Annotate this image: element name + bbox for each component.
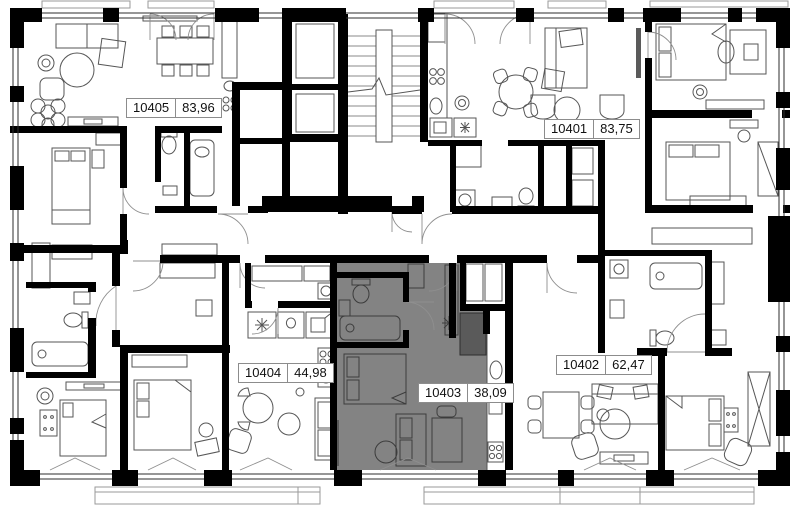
unit-number: 10403 [419,384,468,402]
wardrobe-icon [748,372,770,446]
desk-icon [718,30,766,74]
boiler-icon [572,180,593,206]
unit-number: 10401 [545,120,594,138]
ceiling-light-icon [37,388,53,404]
window [13,102,18,166]
dining-table-icon [157,26,213,76]
stool-icon [196,300,212,316]
bathroom-fixtures [32,292,90,366]
window [779,48,784,92]
sink-icon [430,98,442,114]
window [13,261,18,328]
unit-number: 10405 [127,99,176,117]
sink-icon [74,292,90,304]
stove-icon [488,442,503,462]
armchair-icon [225,427,253,455]
radiator-icon [706,100,764,109]
wardrobe-icon [160,263,215,278]
window [13,372,18,418]
stove-icon [430,69,445,85]
wardrobe-icon [252,266,302,281]
unit-area: 38,09 [468,384,513,402]
window [624,13,643,18]
unit-area: 44,98 [288,364,333,382]
armchair-icon [40,78,64,100]
wardrobe-icon [758,142,778,196]
dining-table-icon [528,392,594,438]
window [42,13,103,18]
unit-label-10401[interactable]: 1040183,75 [544,119,640,139]
kitchen-cabinet-icon [460,313,486,355]
bed-icon [656,24,726,80]
ceiling-light-icon [693,85,707,99]
wardrobe-icon [652,228,752,244]
nightstand-icon [92,150,104,168]
lamp-icon [738,130,750,142]
window [779,352,784,390]
window [346,13,418,18]
bathroom-fixtures [455,145,593,211]
ceiling-light-icon [38,55,54,71]
bed-icon [60,400,106,456]
window [40,474,112,479]
kitchen-icon [428,14,476,137]
bathtub-icon [650,263,702,289]
nightstand-icon [724,408,738,432]
tv-bench-icon [66,382,126,390]
stairwell [296,24,420,142]
toilet-icon [161,131,177,154]
toilet-icon [64,312,88,328]
window [574,474,646,479]
round-table-icon [238,388,273,430]
unit-area: 83,96 [176,99,221,117]
unit-number: 10402 [557,356,606,374]
bed-icon [134,380,191,450]
unit-area: 62,47 [606,356,651,374]
tv-bench-icon [68,117,118,126]
armchair-icon [570,431,600,461]
bathtub-icon [190,140,214,196]
elevator-shaft [296,24,334,132]
unit-label-10403[interactable]: 1040338,09 [418,383,514,403]
round-table-icon [492,67,539,119]
window [506,474,558,479]
window [674,474,758,479]
tv-icon [636,28,641,78]
rug-icon [60,53,94,87]
bed-icon [52,148,90,224]
window [779,436,784,452]
unit-label-10404[interactable]: 1040444,98 [238,363,334,383]
tv-bench-icon [600,452,648,464]
desk-icon [195,423,219,456]
wardrobe-icon [304,266,330,281]
unit-10405-furniture [31,16,237,224]
sink-icon [490,361,502,379]
sink-icon [163,186,177,195]
tub-chair-icon [600,95,624,119]
bathroom-fixtures [610,260,702,346]
window [362,474,478,479]
wardrobe-icon [466,264,483,301]
radiator-icon [132,355,187,367]
bathtub-icon [32,342,88,366]
tub-chair-icon [531,95,555,119]
window [779,302,784,336]
boiler-icon [572,148,593,174]
unit-label-10402[interactable]: 1040262,47 [556,355,652,375]
vent-icon [460,122,470,133]
plant-icon [31,99,65,130]
wardrobe-icon [96,133,122,145]
window [13,48,18,86]
window [138,474,204,479]
bed-icon [666,142,730,200]
pouf-icon [278,413,300,435]
window [13,210,18,243]
kitchen-icons-row [248,312,334,338]
floor-plan: 1040583,96 1040183,75 1040444,98 1040338… [0,0,800,506]
washer-icon [610,260,628,278]
window [742,13,756,18]
unit-label-10405[interactable]: 1040583,96 [126,98,222,118]
lamp-icon [296,388,304,396]
radiator-icon [162,244,217,255]
sofa-icon [541,28,587,92]
window [534,13,608,18]
ceiling-light-icon [455,96,469,110]
window [13,434,18,440]
nightstand-icon [40,410,57,436]
shower-icon [455,145,481,167]
sofa-icon [592,384,658,424]
stair-stringer [376,30,392,142]
unit-area: 83,75 [594,120,639,138]
sink-icon [610,300,624,318]
toilet-icon [650,330,674,346]
floor-plan-svg [0,0,800,506]
unit-number: 10404 [239,364,288,382]
wardrobe-icon [485,264,502,301]
window [232,474,334,479]
window [259,13,282,18]
shelf-icon [730,120,758,128]
bed-icon [666,396,724,450]
window [681,13,728,18]
corridor-fixtures [162,244,217,255]
